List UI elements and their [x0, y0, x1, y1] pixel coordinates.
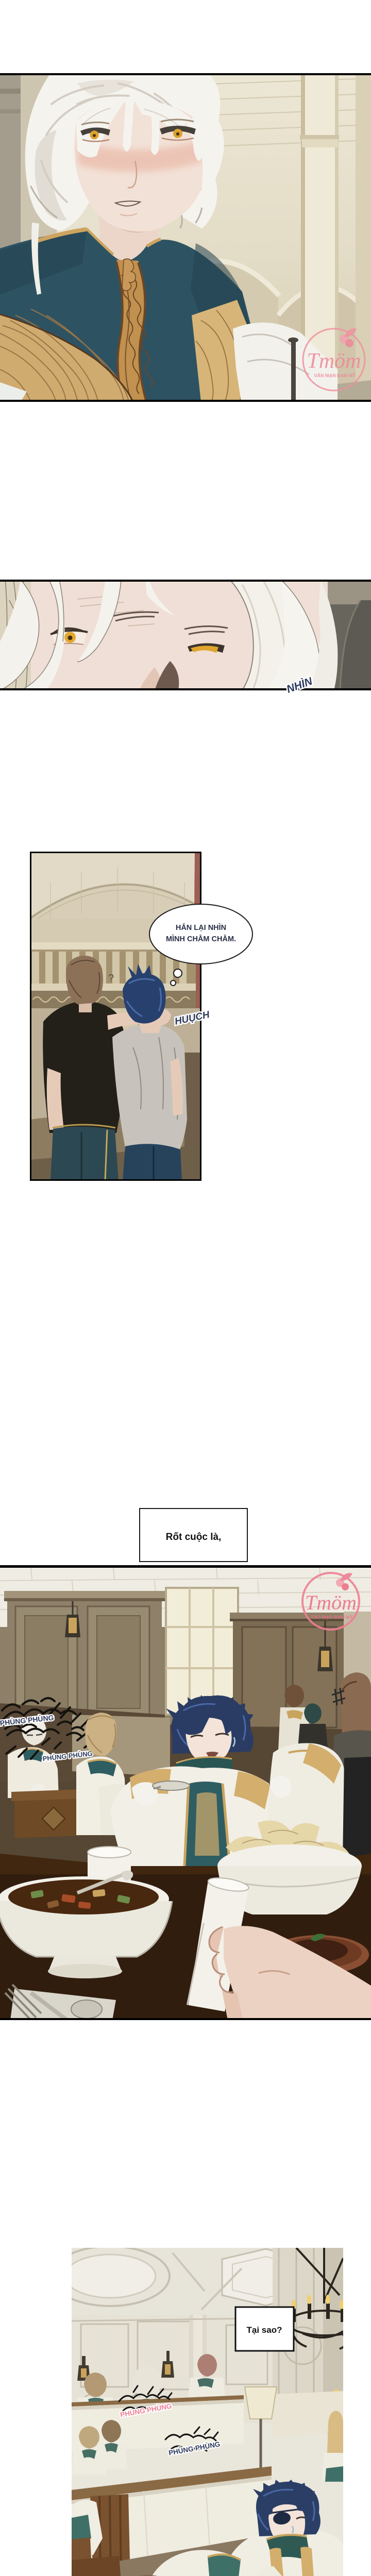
svg-text:NHÌN: NHÌN — [285, 675, 314, 695]
svg-text:VĂN MẠN ĐAM MỸ: VĂN MẠN ĐAM MỸ — [314, 373, 356, 378]
svg-text:TÁO MẠO ĐAM MỸ: TÁO MẠO ĐAM MỸ — [311, 1615, 353, 1620]
svg-text:?: ? — [108, 973, 114, 984]
svg-text:HẮN LẠI NHÌN: HẮN LẠI NHÌN — [176, 923, 226, 932]
svg-text:Tmöm: Tmöm — [305, 1591, 357, 1614]
svg-text:HUỤCH: HUỤCH — [174, 1009, 211, 1027]
svg-text:MÌNH CHẰM CHẰM.: MÌNH CHẰM CHẰM. — [166, 934, 236, 943]
svg-text:Tại sao?: Tại sao? — [247, 2325, 282, 2335]
svg-text:Tmöm: Tmöm — [307, 349, 361, 373]
